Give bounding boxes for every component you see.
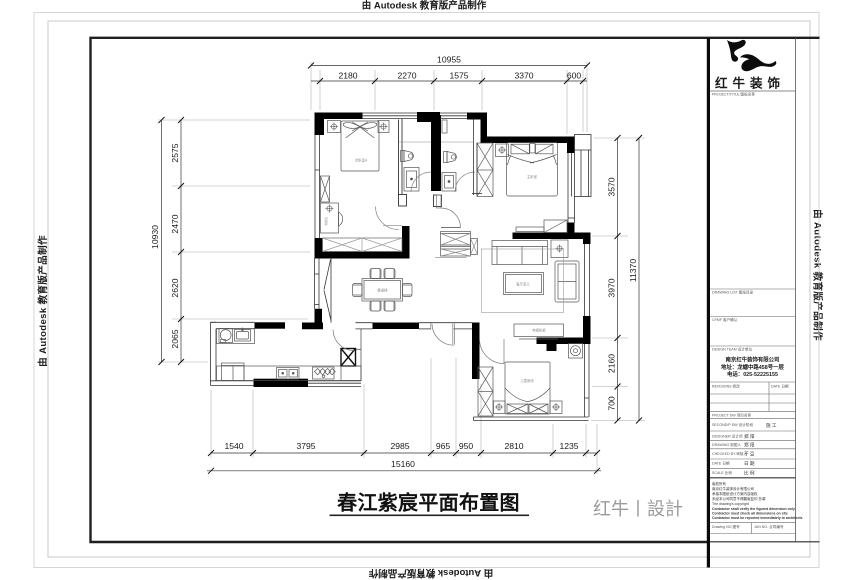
svg-text:南京红牛装饰有限公司: 南京红牛装饰有限公司 bbox=[726, 356, 780, 364]
svg-text:3370: 3370 bbox=[514, 71, 533, 81]
svg-text:由 Autodesk 教育版产品制作: 由 Autodesk 教育版产品制作 bbox=[368, 567, 493, 579]
svg-text:DATE 日期: DATE 日期 bbox=[771, 384, 789, 389]
svg-text:Contractor shall verify the fi: Contractor shall verify the figured dime… bbox=[712, 507, 795, 511]
svg-text:1575: 1575 bbox=[449, 71, 468, 81]
svg-text:The drawing's copyright: The drawing's copyright bbox=[712, 502, 749, 506]
svg-text:DATE 日期: DATE 日期 bbox=[712, 461, 730, 466]
svg-text:1235: 1235 bbox=[559, 441, 578, 451]
svg-text:餐桌椅: 餐桌椅 bbox=[377, 288, 388, 293]
svg-text:2065: 2065 bbox=[170, 329, 180, 348]
svg-text:700: 700 bbox=[607, 396, 617, 411]
svg-text:Drawing NO 图号: Drawing NO 图号 bbox=[712, 524, 740, 529]
svg-text:CHECKED BY 审核人: CHECKED BY 审核人 bbox=[712, 451, 747, 456]
svg-text:次卧室A: 次卧室A bbox=[355, 158, 368, 163]
svg-text:DESIGNER 设计师: DESIGNER 设计师 bbox=[712, 434, 743, 439]
svg-text:书桌台: 书桌台 bbox=[323, 217, 328, 226]
svg-text:2620: 2620 bbox=[170, 278, 180, 297]
svg-text:2810: 2810 bbox=[504, 441, 523, 451]
svg-text:2985: 2985 bbox=[390, 441, 409, 451]
svg-text:950: 950 bbox=[459, 441, 474, 451]
svg-text:儿童房床: 儿童房床 bbox=[520, 378, 534, 383]
svg-text:PROJECT DW 项目名称: PROJECT DW 项目名称 bbox=[712, 412, 751, 417]
svg-text:2575: 2575 bbox=[170, 143, 180, 162]
svg-text:PROJECT/TITLE 图纸名称: PROJECT/TITLE 图纸名称 bbox=[712, 92, 755, 97]
svg-text:2270: 2270 bbox=[397, 71, 416, 81]
svg-text:郑 阳: 郑 阳 bbox=[744, 433, 755, 440]
svg-text:春江紫宸平面布置图: 春江紫宸平面布置图 bbox=[336, 491, 520, 515]
svg-text:DRAWING 制图人: DRAWING 制图人 bbox=[712, 442, 741, 447]
svg-text:DRAWING LIST 图纸目录: DRAWING LIST 图纸目录 bbox=[712, 290, 754, 295]
svg-text:2160: 2160 bbox=[607, 354, 617, 373]
svg-text:2180: 2180 bbox=[338, 71, 357, 81]
svg-text:Contractor must check all dime: Contractor must check all dimensions on … bbox=[712, 512, 788, 516]
svg-text:3795: 3795 bbox=[296, 441, 315, 451]
svg-text:DESIGN TEAM 设计单位: DESIGN TEAM 设计单位 bbox=[712, 347, 752, 352]
svg-text:11370: 11370 bbox=[628, 259, 638, 282]
svg-text:未经本公司同意不得翻版复印 抄袭: 未经本公司同意不得翻版复印 抄袭 bbox=[712, 496, 766, 501]
svg-text:电话：025-52225155: 电话：025-52225155 bbox=[727, 370, 778, 378]
svg-text:比 例: 比 例 bbox=[744, 470, 755, 477]
svg-text:施 工: 施 工 bbox=[766, 422, 777, 429]
svg-text:地址：龙蟠中路458号一层: 地址：龙蟠中路458号一层 bbox=[721, 363, 785, 371]
svg-text:客厅茶几: 客厅茶几 bbox=[516, 282, 530, 287]
svg-text:版权所有: 版权所有 bbox=[712, 481, 726, 486]
svg-text:由 Autodesk 教育版产品制作: 由 Autodesk 教育版产品制作 bbox=[362, 0, 487, 12]
svg-text:15160: 15160 bbox=[391, 459, 415, 469]
svg-text:红牛丨設計: 红牛丨設計 bbox=[593, 499, 683, 519]
svg-text:JAN NO. 合同编号: JAN NO. 合同编号 bbox=[754, 524, 784, 529]
svg-text:Contractor must be reported im: Contractor must be reported immediately … bbox=[712, 516, 802, 520]
svg-text:SCALE 比例: SCALE 比例 bbox=[712, 470, 732, 475]
svg-text:2470: 2470 bbox=[170, 214, 180, 233]
svg-text:10930: 10930 bbox=[150, 225, 160, 249]
svg-text:CFMF 客户确认: CFMF 客户确认 bbox=[712, 317, 738, 322]
svg-text:600: 600 bbox=[567, 71, 582, 81]
svg-text:电视机柜: 电视机柜 bbox=[532, 328, 546, 333]
svg-text:REVISIONS 修改: REVISIONS 修改 bbox=[712, 384, 740, 389]
svg-text:承接本图纸设计方案内容版权: 承接本图纸设计方案内容版权 bbox=[712, 491, 758, 496]
svg-text:郑 阳: 郑 阳 bbox=[744, 442, 755, 449]
svg-text:南京红牛装饰设计有限公司: 南京红牛装饰设计有限公司 bbox=[712, 486, 754, 491]
svg-text:红牛装饰: 红牛装饰 bbox=[715, 76, 785, 91]
svg-text:3570: 3570 bbox=[607, 177, 617, 196]
svg-text:3970: 3970 bbox=[607, 278, 617, 297]
svg-text:1540: 1540 bbox=[224, 441, 243, 451]
svg-text:由 Autodesk 教育版产品制作: 由 Autodesk 教育版产品制作 bbox=[812, 209, 824, 341]
svg-text:SECOND/P DW 设计阶段: SECOND/P DW 设计阶段 bbox=[712, 422, 753, 427]
svg-text:于 豆: 于 豆 bbox=[744, 452, 755, 457]
svg-text:965: 965 bbox=[436, 441, 451, 451]
svg-text:10955: 10955 bbox=[437, 55, 461, 65]
svg-text:主卧室: 主卧室 bbox=[527, 174, 538, 179]
svg-text:由 Autodesk 教育版产品制作: 由 Autodesk 教育版产品制作 bbox=[37, 235, 49, 367]
